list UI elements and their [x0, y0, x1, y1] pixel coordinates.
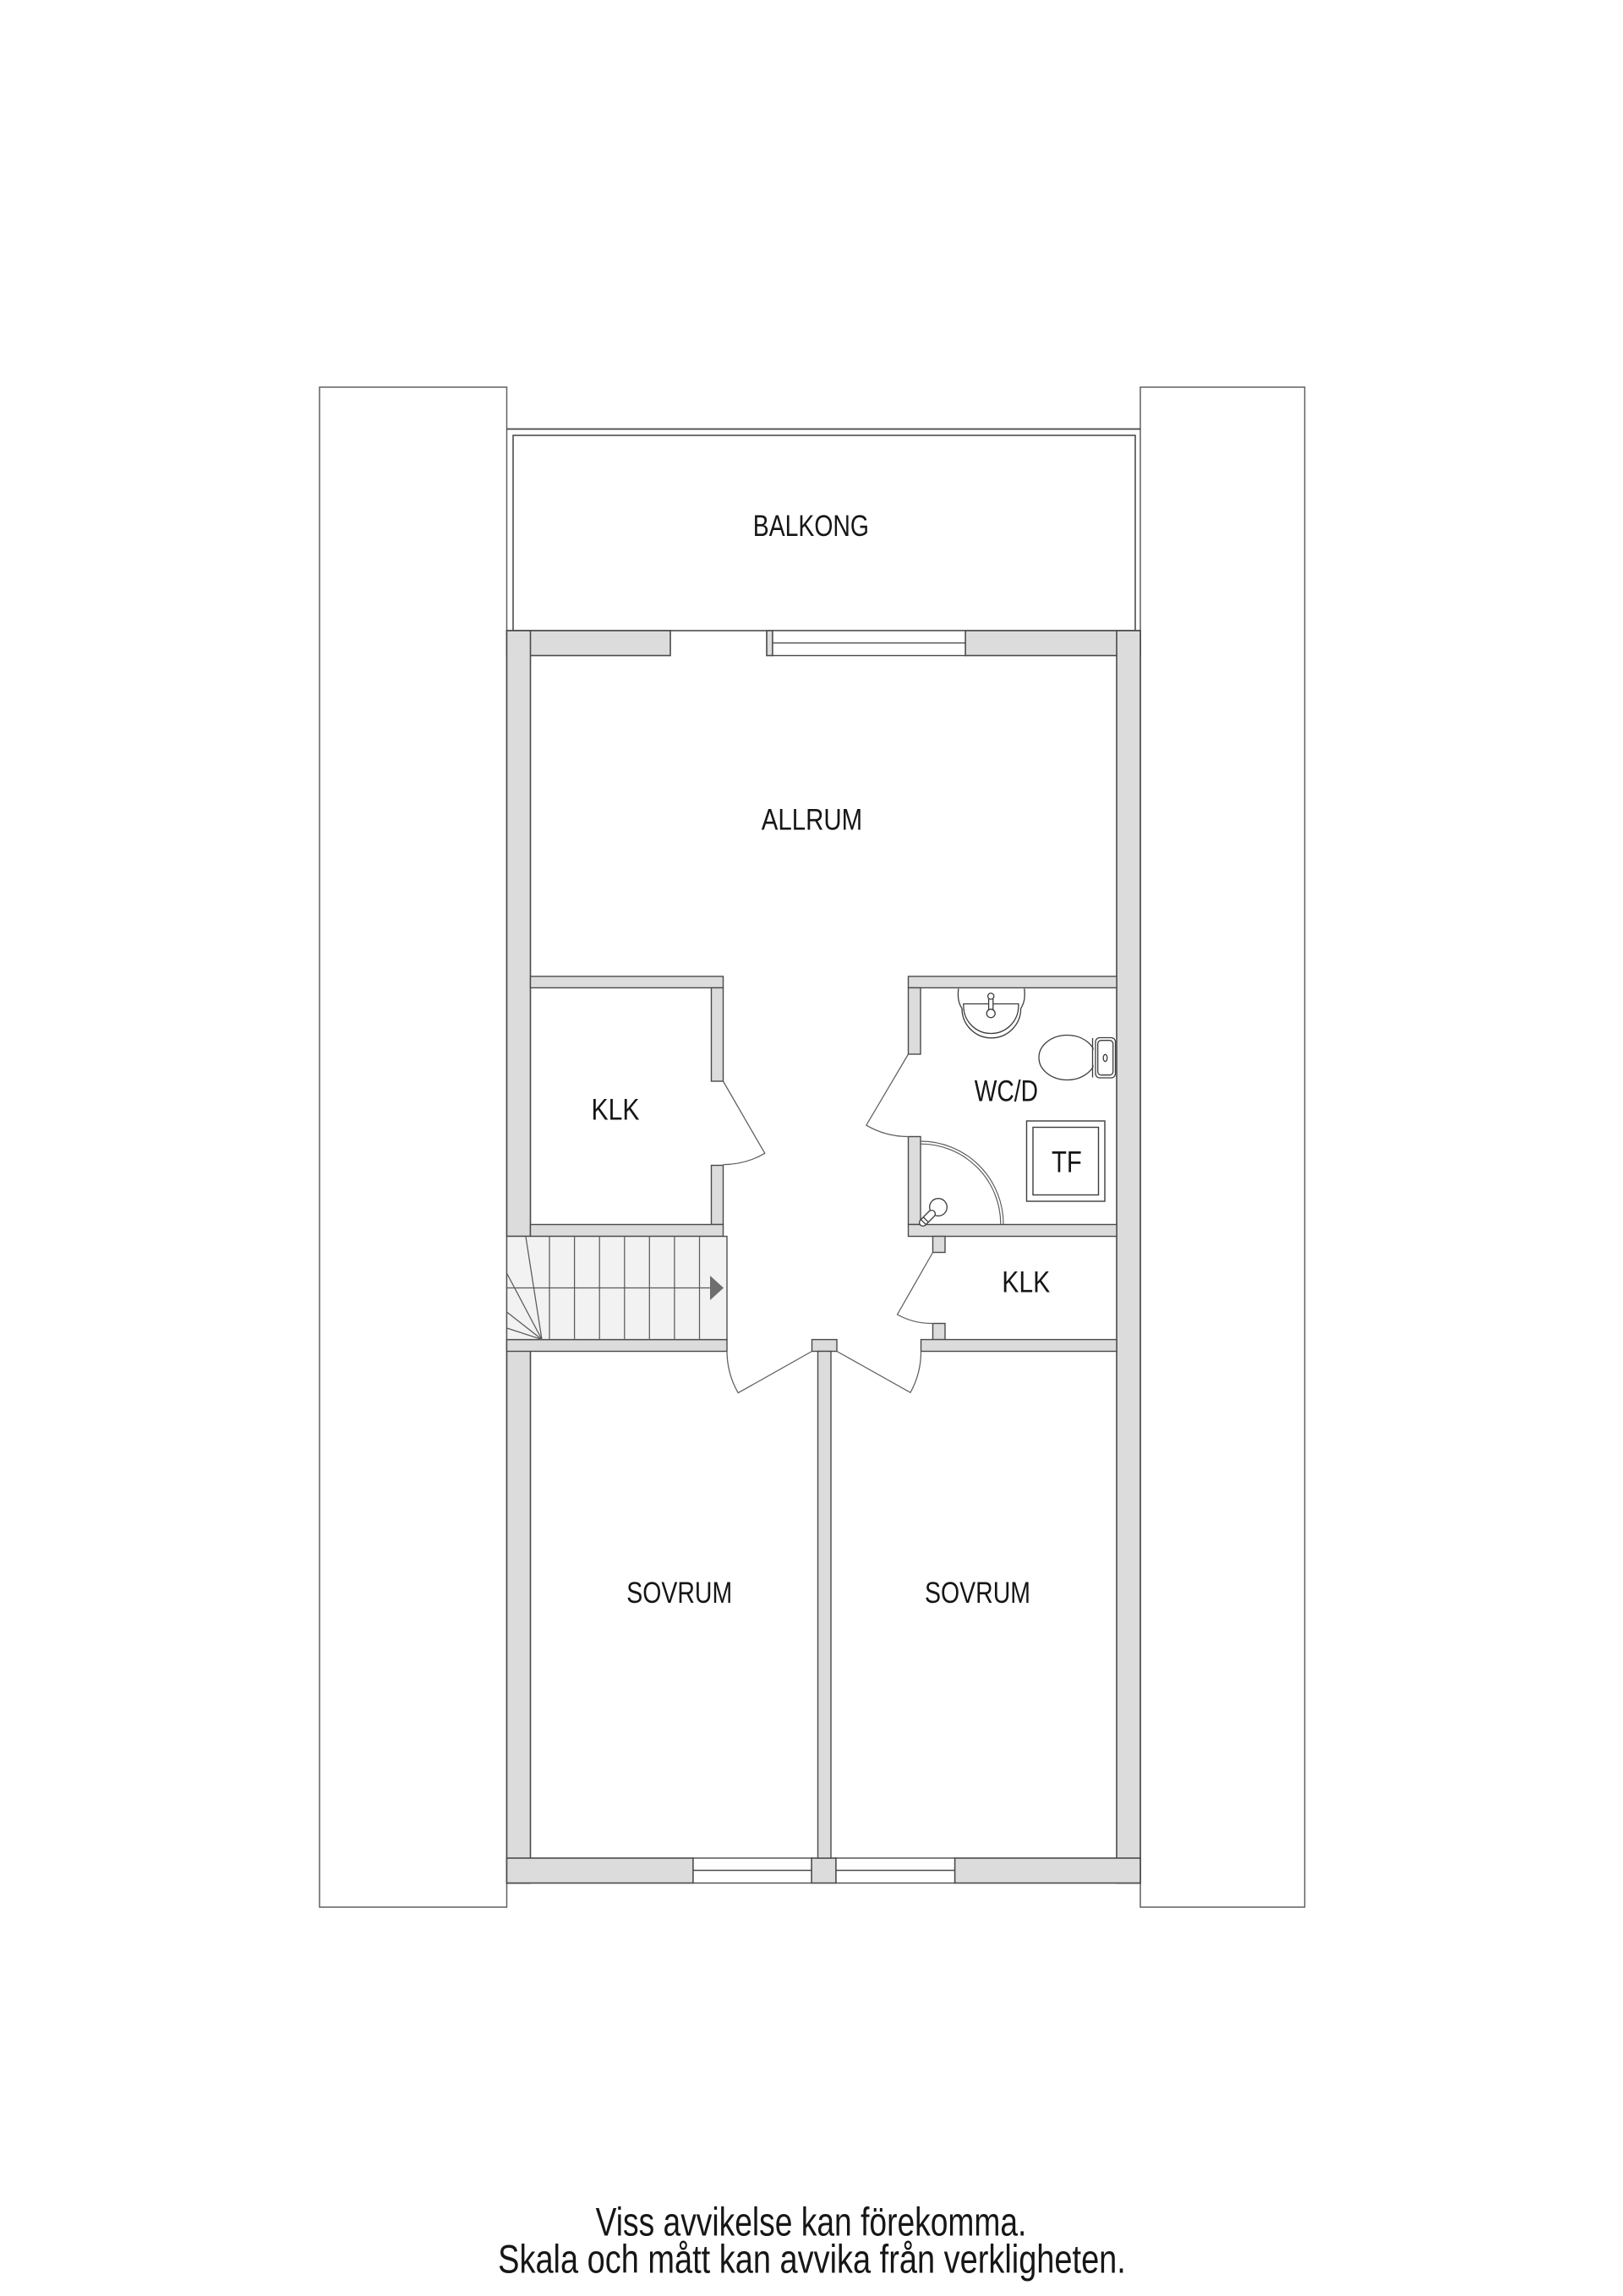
svg-text:TF: TF [1052, 1146, 1082, 1179]
svg-text:SOVRUM: SOVRUM [925, 1577, 1030, 1610]
svg-text:WC/D: WC/D [975, 1075, 1038, 1108]
svg-text:ALLRUM: ALLRUM [762, 804, 862, 837]
svg-text:KLK: KLK [1002, 1266, 1050, 1298]
svg-text:Skala och mått kan avvika från: Skala och mått kan avvika från verklighe… [498, 2237, 1126, 2282]
svg-text:KLK: KLK [592, 1094, 640, 1127]
svg-text:SOVRUM: SOVRUM [626, 1577, 732, 1610]
svg-text:BALKONG: BALKONG [753, 510, 869, 543]
